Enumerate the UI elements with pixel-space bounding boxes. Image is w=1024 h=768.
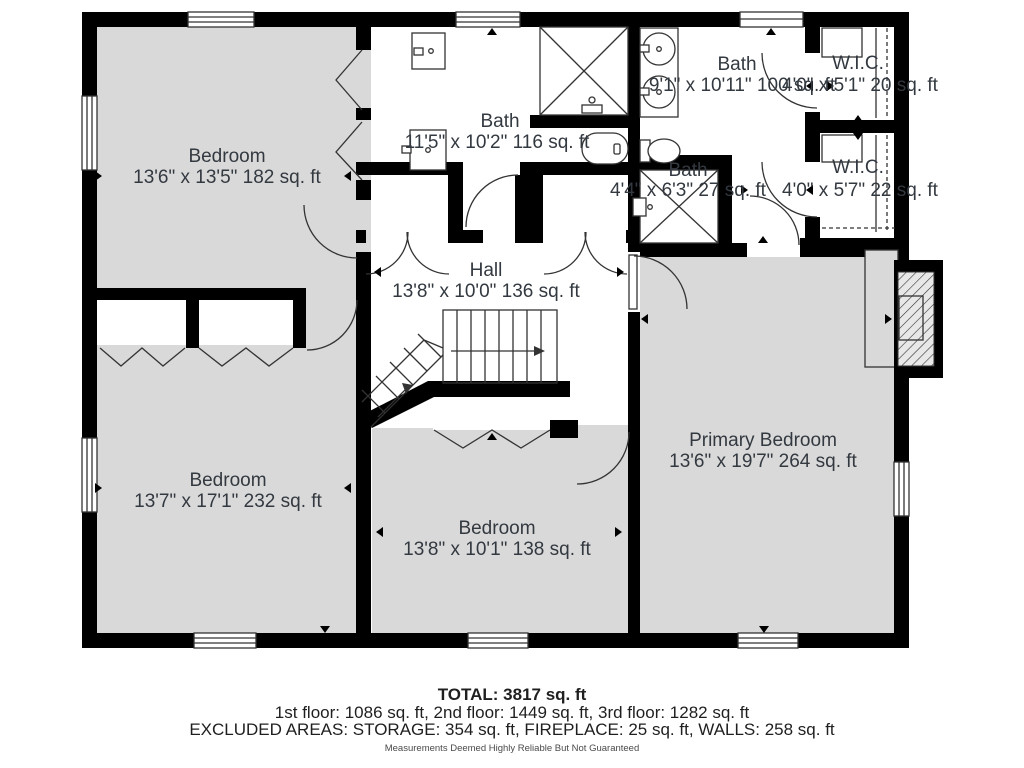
window xyxy=(738,633,798,648)
bedroom-tl-label: Bedroom xyxy=(188,146,265,167)
bedroom-tl-dims: 13'6" x 13'5" 182 sq. ft xyxy=(133,167,321,188)
wic-bottom-label: W.I.C. xyxy=(832,157,884,178)
door-leaf-primary xyxy=(629,255,637,309)
wall-seg xyxy=(530,115,640,128)
wall-seg xyxy=(515,230,543,243)
wall-seg xyxy=(82,288,306,300)
window xyxy=(894,462,909,516)
threshold xyxy=(356,200,371,252)
bl-closet2-floor xyxy=(199,300,293,345)
summary-disclaimer: Measurements Deemed Highly Reliable But … xyxy=(385,743,640,754)
floorplan-svg: Bedroom 13'6" x 13'5" 182 sq. ft Bath 11… xyxy=(0,0,1024,768)
bedroom-bl-label: Bedroom xyxy=(189,470,266,491)
window xyxy=(188,12,254,27)
fireplace xyxy=(865,250,943,378)
wall-seg xyxy=(805,27,820,53)
window xyxy=(194,633,256,648)
summary-total: TOTAL: 3817 sq. ft xyxy=(438,685,587,704)
floorplan-page: Bedroom 13'6" x 13'5" 182 sq. ft Bath 11… xyxy=(0,0,1024,768)
wall-closet-end xyxy=(293,300,306,348)
wall-seg xyxy=(805,112,820,162)
bath-right-label: Bath xyxy=(717,54,756,75)
wall-seg xyxy=(805,217,820,243)
wall-seg xyxy=(628,27,640,252)
wall-seg xyxy=(356,108,371,120)
bath-small-label: Bath xyxy=(668,160,707,181)
bl-closet1-floor xyxy=(97,300,186,345)
wic-top-label: W.I.C. xyxy=(832,53,884,74)
wall-seg xyxy=(448,175,463,230)
wall-wic-divider xyxy=(805,120,897,133)
wall-closet-divider xyxy=(186,300,199,348)
hall-closet-left-floor xyxy=(365,175,448,230)
window xyxy=(82,96,97,170)
bedroom-bottom-left-floor xyxy=(97,300,356,633)
bedroom-bm-dims: 13'8" x 10'1" 138 sq. ft xyxy=(403,539,591,560)
window xyxy=(456,12,520,27)
wall-seg xyxy=(356,27,371,50)
wall-seg xyxy=(515,175,543,230)
wall-stub xyxy=(550,420,578,438)
wall-seg xyxy=(356,252,371,633)
wall-seg xyxy=(520,162,640,175)
window xyxy=(82,438,97,512)
bath-center-label: Bath xyxy=(480,111,519,132)
wall-seg xyxy=(356,180,371,200)
threshold xyxy=(578,425,628,440)
wic-top-dims: 4'0" x 5'1" 20 sq. ft xyxy=(782,75,939,96)
bath-center-dims: 11'5" x 10'2" 116 sq. ft xyxy=(405,132,591,153)
bedroom-bm-label: Bedroom xyxy=(458,518,535,539)
threshold xyxy=(306,288,356,300)
wic-bottom-dims: 4'0" x 5'7" 22 sq. ft xyxy=(782,180,939,201)
double-vanity xyxy=(640,28,678,117)
bm-closet-floor xyxy=(434,397,550,430)
wall-seg xyxy=(640,243,747,257)
summary-excluded: EXCLUDED AREAS: STORAGE: 354 sq. ft, FIR… xyxy=(189,720,835,739)
hall-label: Hall xyxy=(470,260,503,281)
shower xyxy=(540,27,628,115)
summary-footer: TOTAL: 3817 sq. ft 1st floor: 1086 sq. f… xyxy=(189,685,835,754)
bedroom-bl-dims: 13'7" x 17'1" 232 sq. ft xyxy=(134,491,322,512)
wall-seg xyxy=(448,230,483,243)
wall-seg xyxy=(356,230,366,243)
window xyxy=(740,12,803,27)
threshold xyxy=(747,243,800,257)
bath-small-dims: 4'4" x 6'3" 27 sq. ft xyxy=(610,180,767,201)
wall-seg xyxy=(628,312,640,633)
primary-bedroom-dims: 13'6" x 19'7" 264 sq. ft xyxy=(669,451,857,472)
threshold xyxy=(356,50,371,108)
primary-bedroom-label: Primary Bedroom xyxy=(689,430,837,451)
window xyxy=(468,633,528,648)
wall-seg xyxy=(718,155,732,252)
hall-dims: 13'8" x 10'0" 136 sq. ft xyxy=(392,281,580,302)
